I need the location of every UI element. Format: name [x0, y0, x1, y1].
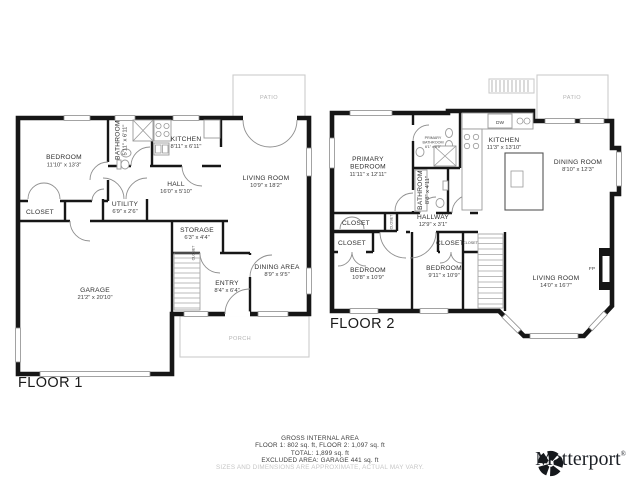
floor1-bathroom-label: BATHROOM — [115, 120, 122, 160]
floor2-right-bedroom-closet-label: CLOSET — [436, 240, 464, 247]
floor1-stairs — [174, 253, 200, 310]
floor1-stair-closet-label: CLOSET — [192, 245, 196, 261]
floor2-bedroom-left-label: BEDROOM — [350, 267, 386, 274]
floor2-small-closet-label: CLOSET — [390, 214, 394, 230]
floor2-kitchen-label: KITCHEN — [489, 137, 520, 144]
floor2-hallway-label: HALLWAY — [417, 214, 449, 221]
floor1-garage-dims: 21'2" x 20'10" — [77, 295, 112, 301]
floor1-hall-label: HALL — [167, 181, 185, 188]
floor1-bedroom-label: BEDROOM — [46, 154, 82, 161]
floor2-plan: PATIO PRIMARY BEDROOM 11'11" x 12'11" PR… — [330, 75, 622, 338]
floor1-bedroom-dims: 11'10" x 13'3" — [47, 163, 82, 169]
floor2-exterior-stairs — [489, 79, 534, 93]
floor2-dining-room-dims: 8'10" x 12'3" — [562, 167, 594, 173]
floor1-dining-area-label: DINING AREA — [254, 264, 300, 271]
floor1-garage-label: GARAGE — [80, 287, 110, 294]
floor1-dining-area-dims: 8'9" x 9'5" — [264, 272, 289, 278]
floor1-entry-dims: 8'4" x 6'4" — [214, 288, 239, 294]
matterport-logo: Matterport® — [535, 448, 626, 471]
floorplan-page: PATIO PORCH BEDROOM 11'10" x 13'3" BATHR… — [0, 0, 640, 480]
floor1-closet-label: CLOSET — [26, 209, 54, 216]
floor2-living-room-dims: 14'0" x 16'7" — [540, 283, 572, 289]
gross-internal-area-title: GROSS INTERNAL AREA — [0, 435, 640, 442]
floor1-kitchen-label: KITCHEN — [171, 136, 202, 143]
matterport-logo-icon — [535, 448, 566, 479]
floor2-bedroom-left-dims: 10'8" x 10'9" — [352, 275, 384, 281]
floor1-storage-dims: 6'3" x 4'4" — [184, 235, 209, 241]
floor2-living-room-label: LIVING ROOM — [533, 275, 580, 282]
floor2-title: FLOOR 2 — [330, 316, 395, 332]
registered-mark: ® — [621, 450, 626, 458]
floor2-bedroom-right-dims: 9'11" x 10'9" — [428, 273, 459, 279]
floor1-utility-dims: 6'9" x 2'6" — [112, 209, 137, 215]
floor1-storage-label: STORAGE — [180, 227, 214, 234]
floor1-entry-label: ENTRY — [215, 280, 239, 287]
floor2-left-bedroom-closet-label: CLOSET — [338, 240, 366, 247]
floor2-dishwasher-label: DW — [496, 120, 504, 126]
floor2-bathroom-label: BATHROOM — [417, 170, 424, 210]
floor2-primary-bathroom-dims: 6'1" x 6'5" — [425, 145, 442, 149]
floor1-utility-label: UTILITY — [112, 201, 139, 208]
floor2-dining-room-label: DINING ROOM — [554, 159, 602, 166]
floor2-fireplace-label: FP — [589, 266, 595, 272]
floor2-patio-label: PATIO — [563, 95, 581, 101]
floor1-plan: PATIO PORCH BEDROOM 11'10" x 13'3" BATHR… — [16, 75, 312, 391]
floor2-stair-closet-label: CLOSET — [463, 241, 479, 245]
floor1-porch-label: PORCH — [229, 336, 251, 342]
floor2-bedroom-right-label: BEDROOM — [426, 265, 462, 272]
floor2-primary-bathroom-label2: BATHROOM — [422, 141, 443, 145]
floor2-stairs — [478, 234, 503, 308]
floor1-title: FLOOR 1 — [18, 375, 83, 391]
floor2-primary-bedroom-label2: BEDROOM — [350, 164, 386, 171]
floor2-primary-bedroom-label1: PRIMARY — [352, 156, 384, 163]
floor1-fixtures — [117, 120, 220, 169]
floor2-primary-bedroom-dims: 11'11" x 12'11" — [350, 172, 387, 178]
floor2-primary-bathroom-label1: PRIMARY — [425, 136, 442, 140]
floor2-kitchen-dims: 11'3" x 13'10" — [487, 145, 522, 151]
floor1-bathroom-dims: 5'11" x 6'11" — [123, 125, 129, 156]
floor1-patio-label: PATIO — [260, 95, 278, 101]
floor1-hall-dims: 16'0" x 5'10" — [160, 189, 192, 195]
floor2-primary-closet-label: CLOSET — [342, 220, 370, 227]
floor1-living-room-label: LIVING ROOM — [243, 175, 290, 182]
floor2-hallway-dims: 12'9" x 3'1" — [419, 222, 448, 228]
floor2-bathroom-dims: 8'8" x 4'11" — [425, 176, 431, 204]
floor1-living-room-dims: 10'9" x 18'2" — [250, 183, 282, 189]
floorplan-drawing: PATIO PORCH BEDROOM 11'10" x 13'3" BATHR… — [0, 0, 640, 480]
floor1-kitchen-dims: 8'11" x 6'11" — [171, 144, 202, 150]
